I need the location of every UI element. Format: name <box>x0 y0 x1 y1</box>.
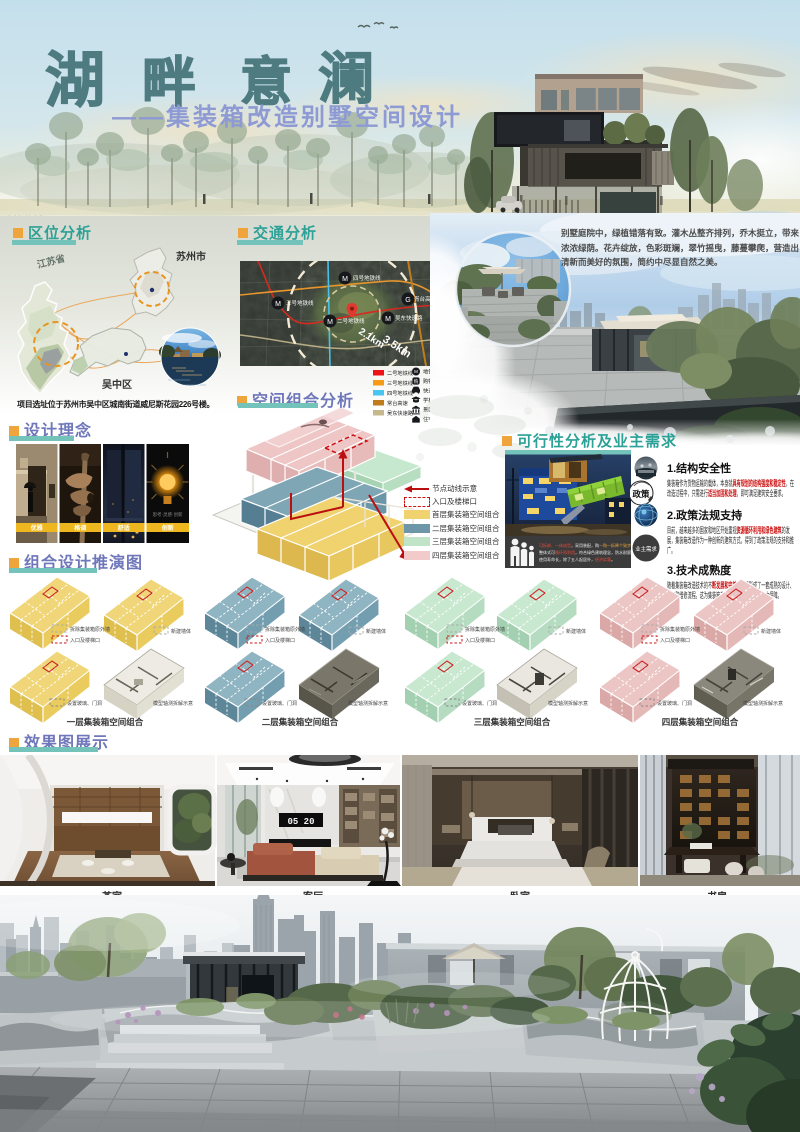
svg-text:江苏省: 江苏省 <box>36 252 67 271</box>
svg-text:模型轴测拆解示意: 模型轴测拆解示意 <box>348 700 388 707</box>
svg-text:新建墙体: 新建墙体 <box>171 628 191 635</box>
svg-text:使用寿命长，除了五人起居外，经济实惠。: 使用寿命长，除了五人起居外，经济实惠。 <box>539 556 615 562</box>
svg-text:四层集装箱空间组合: 四层集装箱空间组合 <box>662 717 739 727</box>
svg-text:入口及楼梯口: 入口及楼梯口 <box>265 637 295 644</box>
svg-text:G: G <box>405 297 410 304</box>
svg-text:入口及楼梯口: 入口及楼梯口 <box>660 637 690 644</box>
svg-text:M: M <box>275 301 281 308</box>
svg-text:购: 购 <box>414 378 419 385</box>
svg-text:M: M <box>414 369 418 374</box>
svg-text:新建墙体: 新建墙体 <box>566 628 586 635</box>
svg-text:设置玻璃、门洞: 设置玻璃、门洞 <box>657 700 692 707</box>
svg-text:拆除集装箱原外墙: 拆除集装箱原外墙 <box>660 626 700 633</box>
svg-text:拆除集装箱原外墙: 拆除集装箱原外墙 <box>265 626 305 633</box>
svg-text:拆除集装箱原外墙: 拆除集装箱原外墙 <box>465 626 505 633</box>
svg-text:M: M <box>342 276 348 283</box>
svg-text:一层集装箱空间组合: 一层集装箱空间组合 <box>67 717 144 727</box>
svg-text:舒适: 舒适 <box>118 524 130 532</box>
svg-text:拆除集装箱原外墙: 拆除集装箱原外墙 <box>70 626 110 633</box>
svg-text:吴中区: 吴中区 <box>102 378 132 391</box>
svg-text:创新: 创新 <box>161 524 174 532</box>
svg-text:三号地铁线: 三号地铁线 <box>286 299 314 307</box>
svg-text:可拆卸、一体成型，采用装配，购一购一拆降个致步，交货快，: 可拆卸、一体成型，采用装配，购一购一拆降个致步，交货快， <box>539 542 631 548</box>
svg-text:设置玻璃、门洞: 设置玻璃、门洞 <box>67 700 102 707</box>
svg-text:入口及楼梯口: 入口及楼梯口 <box>70 637 100 644</box>
svg-text:格调: 格调 <box>74 524 86 532</box>
svg-text:二号地铁线: 二号地铁线 <box>337 317 365 325</box>
svg-text:新建墙体: 新建墙体 <box>366 628 386 635</box>
svg-text:模型轴测拆解示意: 模型轴测拆解示意 <box>153 700 193 707</box>
svg-text:M: M <box>385 316 391 323</box>
svg-text:模型轴测拆解示意: 模型轴测拆解示意 <box>743 700 783 707</box>
svg-text:新建墙体: 新建墙体 <box>761 628 781 635</box>
svg-text:整体式可循环再利用，符合绿色建筑理念，防水耐腐蚀，: 整体式可循环再利用，符合绿色建筑理念，防水耐腐蚀， <box>539 549 631 555</box>
svg-text:二层集装箱空间组合: 二层集装箱空间组合 <box>262 717 339 727</box>
svg-text:苏州市: 苏州市 <box>176 250 206 263</box>
svg-text:M: M <box>327 319 333 326</box>
svg-text:二号地铁线: 二号地铁线 <box>387 369 413 377</box>
svg-text:思考·灵感·创新: 思考·灵感·创新 <box>153 511 183 518</box>
svg-text:政策: 政策 <box>632 489 650 499</box>
svg-text:设置玻璃、门洞: 设置玻璃、门洞 <box>462 700 497 707</box>
svg-text:优雅: 优雅 <box>31 524 43 532</box>
svg-text:吴东快速路: 吴东快速路 <box>395 314 423 322</box>
svg-text:业主需求: 业主需求 <box>635 545 657 553</box>
svg-text:05 20: 05 20 <box>287 817 314 827</box>
svg-text:入口及楼梯口: 入口及楼梯口 <box>465 637 495 644</box>
svg-text:设置玻璃、门洞: 设置玻璃、门洞 <box>262 700 297 707</box>
svg-text:模型轴测拆解示意: 模型轴测拆解示意 <box>548 700 588 707</box>
svg-text:三层集装箱空间组合: 三层集装箱空间组合 <box>474 717 551 727</box>
svg-text:四号地铁线: 四号地铁线 <box>353 274 381 282</box>
